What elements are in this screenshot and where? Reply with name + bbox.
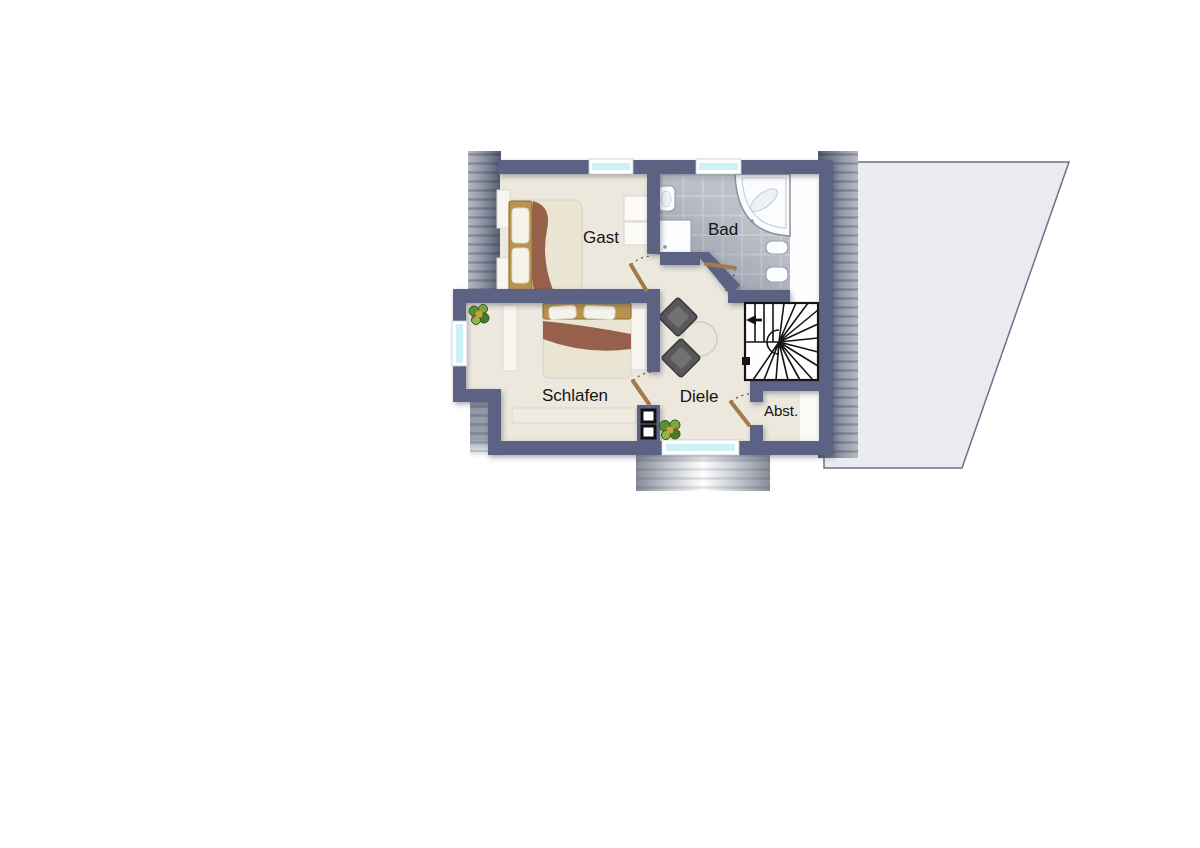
winder-staircase — [742, 303, 818, 380]
wall-top — [498, 160, 833, 174]
wall-schlafen-diele — [647, 289, 660, 372]
wall-stairs-top — [728, 290, 790, 303]
nightstand — [497, 258, 510, 292]
low-roof-strip-bad — [790, 174, 819, 303]
stair-newel-post — [742, 357, 750, 365]
pillow — [549, 305, 577, 320]
wall-abst-stub-bottom — [750, 425, 763, 442]
room-label-diele: Diele — [680, 387, 719, 406]
plant — [660, 420, 681, 440]
wall-divider-horizontal — [453, 289, 660, 303]
single-bed — [509, 200, 582, 292]
wall-bottom — [488, 441, 833, 455]
wall-right — [819, 160, 833, 455]
room-label-gast: Gast — [583, 228, 619, 247]
roof-hatch-left — [468, 151, 501, 301]
pillow — [584, 305, 616, 320]
wardrobe — [624, 222, 649, 245]
low-roof-strip-abst — [800, 391, 819, 441]
floorplan-canvas: Gast Bad Schlafen Diele Abst. — [0, 0, 1200, 848]
wall-abst-stub-top — [750, 380, 763, 402]
wardrobe — [503, 305, 517, 371]
window-top-2 — [696, 159, 741, 174]
wardrobe — [624, 196, 649, 221]
toilet — [766, 241, 788, 254]
pillow — [512, 208, 529, 243]
window-top-1 — [589, 159, 633, 174]
floorplan-drawing: Gast Bad Schlafen Diele Abst. — [0, 0, 1200, 848]
wall-bad-bottom — [660, 252, 700, 265]
dormer — [636, 452, 770, 491]
dresser — [512, 408, 636, 423]
shower — [658, 220, 691, 254]
wall-gast-right — [647, 174, 660, 254]
room-label-abst: Abst. — [764, 402, 798, 419]
roof-plane — [824, 162, 1069, 468]
nightstand — [497, 190, 510, 228]
bathtub-drain — [750, 219, 754, 223]
washbasin — [658, 186, 675, 211]
pillow — [512, 248, 529, 283]
double-bed — [543, 303, 631, 378]
plant — [469, 305, 489, 325]
shower-drain — [663, 245, 667, 249]
room-label-schlafen: Schlafen — [542, 386, 608, 405]
bidet — [766, 267, 788, 282]
room-label-bad: Bad — [708, 220, 738, 239]
window-left-schlafen — [452, 321, 467, 366]
window-bottom-diele — [662, 440, 739, 455]
